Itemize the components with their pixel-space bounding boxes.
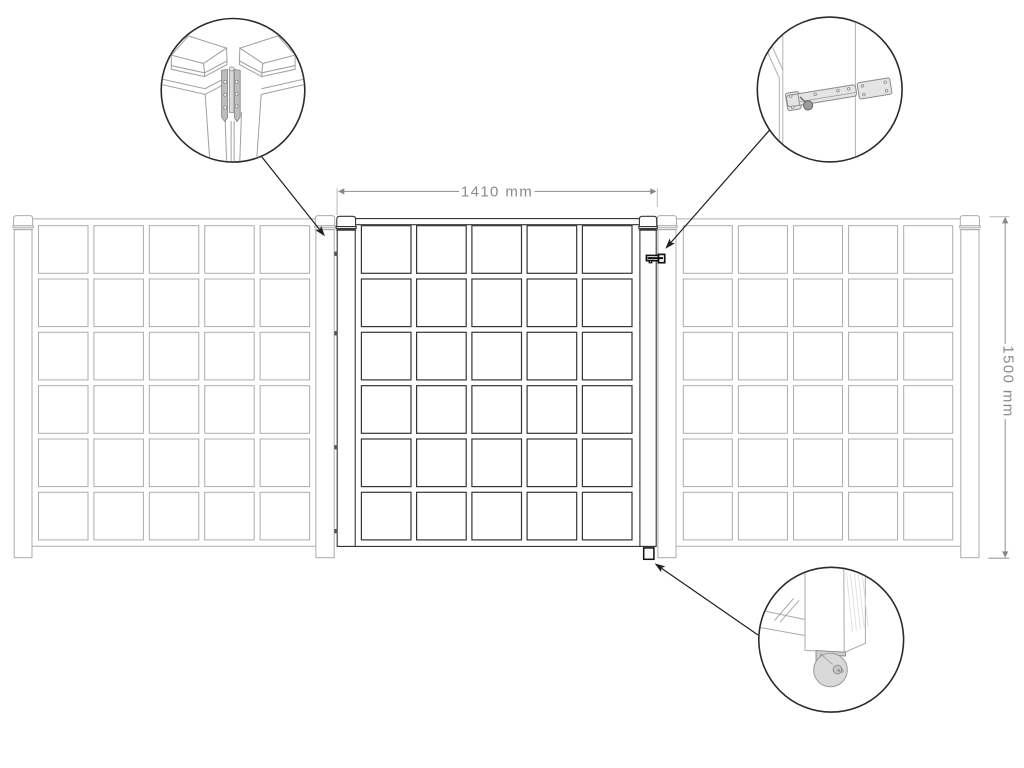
svg-text:1500 mm: 1500 mm [999,345,1016,417]
svg-text:1410 mm: 1410 mm [461,184,533,201]
